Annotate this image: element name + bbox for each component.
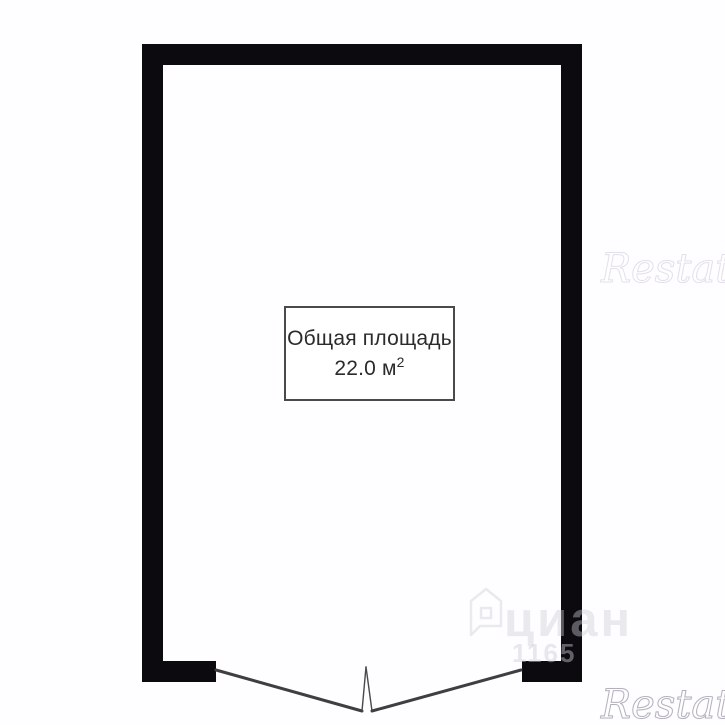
area-value-text: 22.0 м (334, 357, 396, 380)
cian-house-icon (468, 586, 504, 638)
door-center-spike-right (366, 667, 372, 711)
door-leaf-left-line (216, 670, 362, 711)
wall-bottom-left-stub (142, 661, 216, 682)
area-label-box: Общая площадь 22.0 м2 (284, 306, 455, 401)
area-value-superscript: 2 (397, 354, 405, 370)
wall-left (142, 44, 163, 682)
area-label-value: 22.0 м2 (334, 358, 404, 379)
wall-top (142, 44, 582, 65)
area-label-title: Общая площадь (287, 328, 452, 349)
watermark-restate-top: Restate (601, 249, 725, 289)
door-leaf-right-line (372, 670, 521, 711)
watermark-restate-bottom: Restate (601, 685, 725, 725)
wall-bottom-right-stub (522, 661, 582, 682)
wall-right (561, 44, 582, 682)
door-center-spike-left (362, 667, 366, 711)
floor-plan: Общая площадь 22.0 м2 циан 1165 Restate … (0, 0, 725, 725)
